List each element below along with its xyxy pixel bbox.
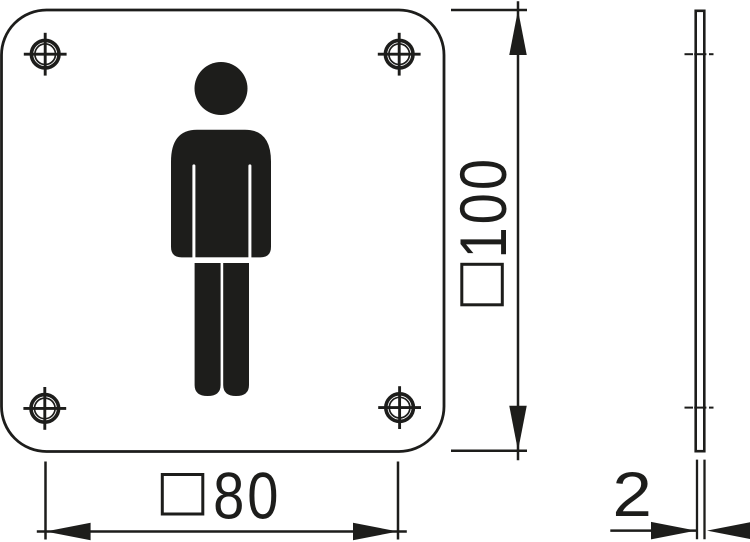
svg-text:100: 100 <box>447 156 520 259</box>
svg-text:2: 2 <box>612 459 652 530</box>
svg-text:80: 80 <box>213 459 281 532</box>
